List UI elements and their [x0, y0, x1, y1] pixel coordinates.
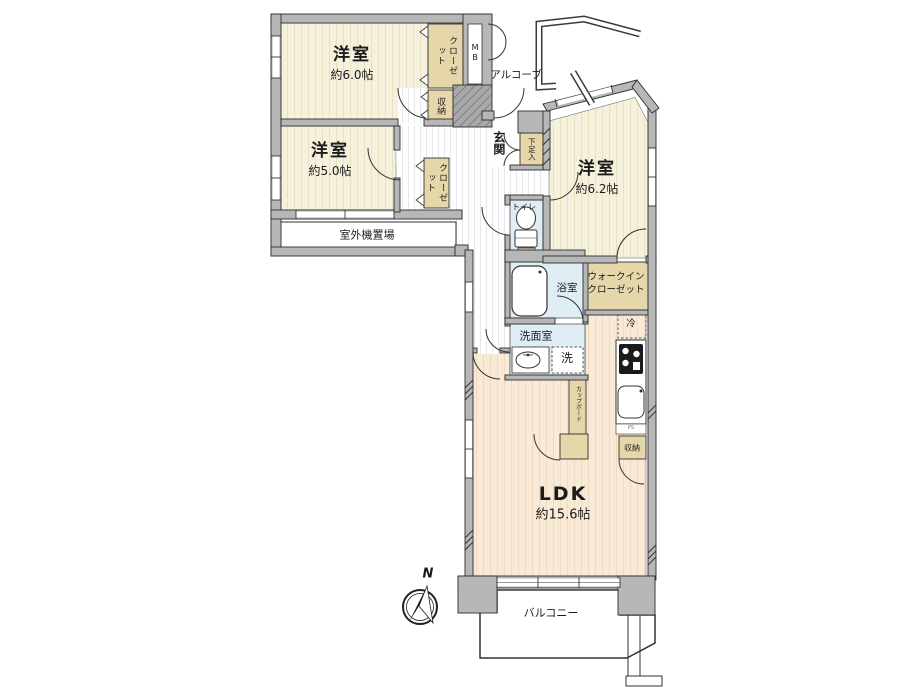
meter-box-label: MB	[470, 43, 479, 63]
balcony-label: バルコニー	[524, 608, 579, 621]
storage-kitchen-label: 収納	[624, 443, 640, 452]
closet2-label: クローゼット	[424, 163, 448, 203]
floor-plan: 洋室 約6.0帖 洋室 約5.0帖 洋室 約6.2帖 LDK 約15.6帖 クロ…	[0, 0, 920, 690]
pipe-space-label: PS	[628, 426, 634, 432]
bedroom2-name: 洋室	[311, 142, 349, 162]
toilet-label: トイレ	[512, 202, 536, 211]
north-compass-icon	[403, 586, 437, 624]
walkin-closet-label-1: ウォークイン	[587, 273, 644, 284]
bedroom2-size: 約5.0帖	[308, 165, 351, 179]
bedroom1-size: 約6.0帖	[330, 69, 373, 83]
bathroom-label: 浴室	[557, 282, 578, 294]
cupboard-lower-box	[560, 434, 588, 459]
closet1-label: クローゼット	[434, 36, 458, 76]
bedroom3-size: 約6.2帖	[575, 183, 618, 197]
walkin-closet-label-2: クローゼット	[587, 286, 644, 297]
ldk-name: LDK	[539, 484, 588, 506]
fridge-label: 冷	[626, 320, 636, 331]
washroom-label: 洗面室	[520, 331, 553, 344]
bedroom3-name: 洋室	[578, 160, 616, 180]
floor-plan-drawing	[0, 0, 920, 690]
entrance-label: 玄関	[491, 131, 505, 155]
storage-hall-label: 収納	[435, 97, 445, 115]
bathtub-icon	[512, 266, 547, 316]
bedroom1-name: 洋室	[333, 46, 371, 66]
cupboard-label: カップボード	[574, 386, 581, 422]
washer-label: 洗	[561, 352, 573, 366]
alcove-label: アルコーブ	[490, 69, 542, 81]
north-label: N	[423, 568, 434, 583]
outdoor-unit-label: 室外機置場	[340, 230, 395, 243]
ldk-size: 約15.6帖	[536, 509, 591, 524]
shoe-cabinet-label: 下足入	[527, 138, 536, 161]
